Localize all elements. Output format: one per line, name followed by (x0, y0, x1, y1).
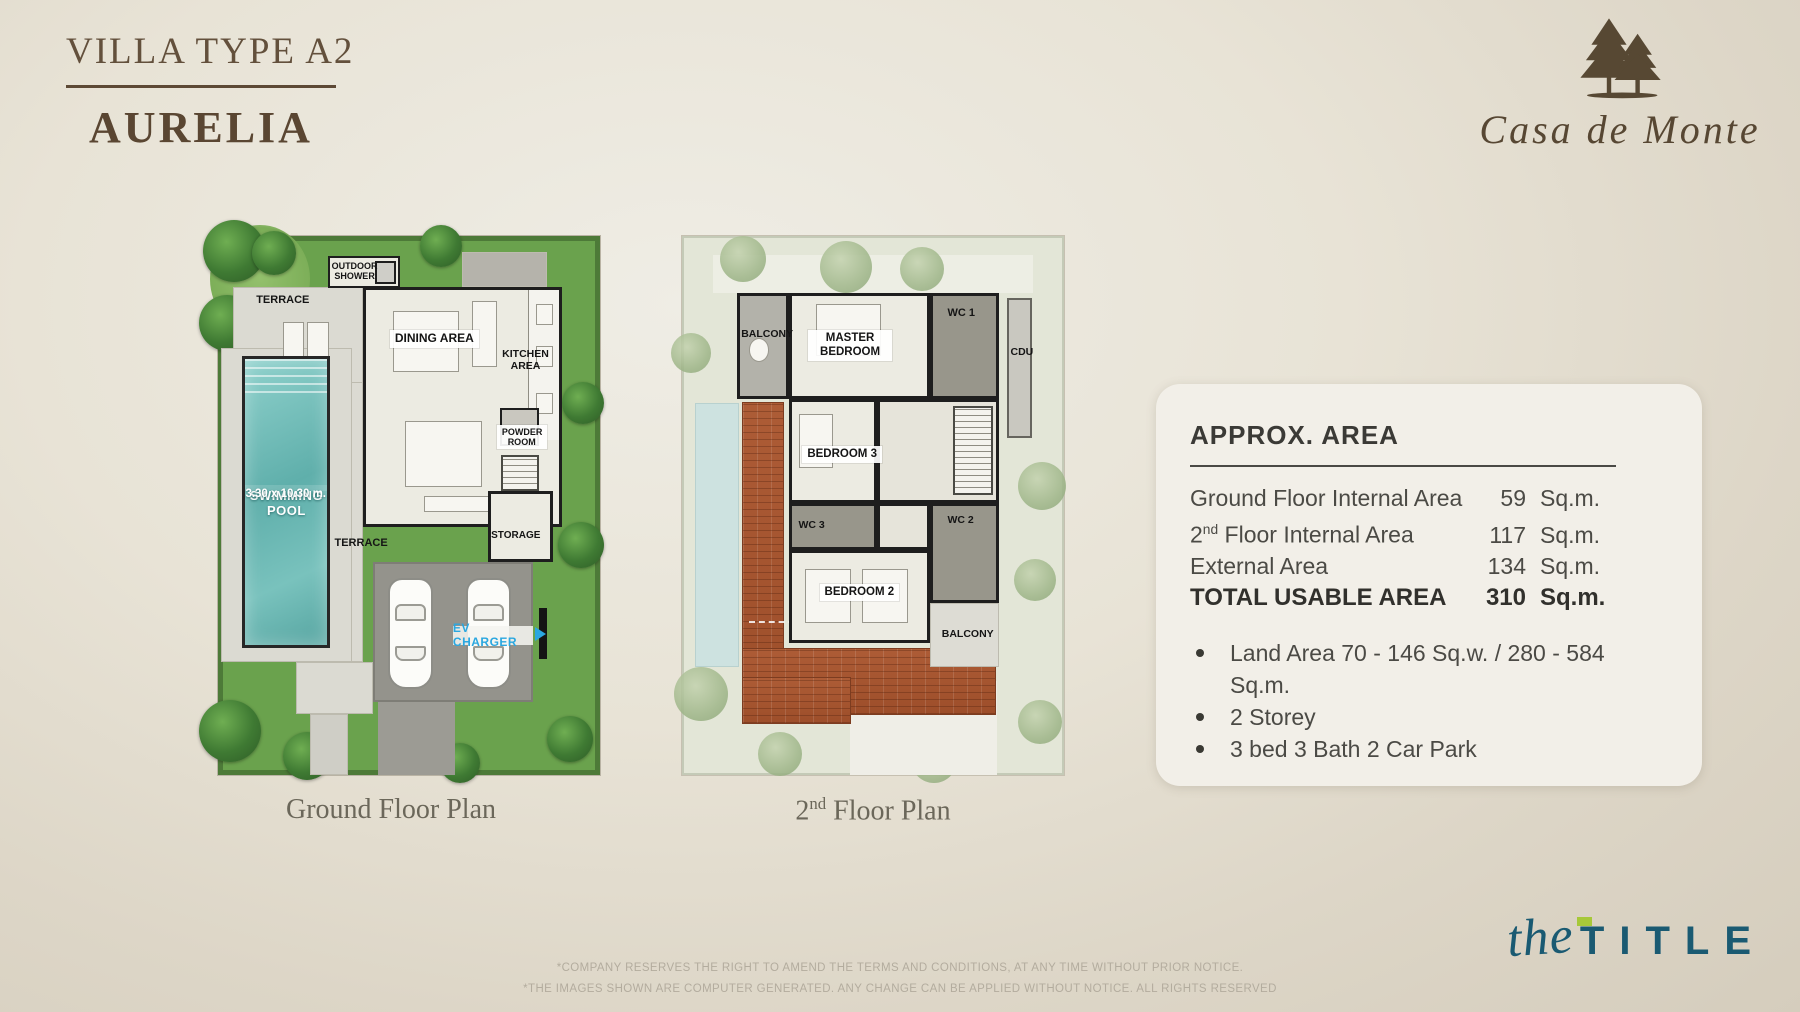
area-row-label: External Area (1190, 551, 1470, 582)
ground-plan-caption: Ground Floor Plan (200, 794, 582, 826)
bedroom2-label: BEDROOM 2 (820, 584, 900, 601)
entry-terrace (296, 662, 373, 714)
powder-room-label: POWDER ROOM (497, 425, 547, 450)
brand-logo: Casa de Monte (1470, 14, 1770, 153)
brand-name: Casa de Monte (1470, 106, 1770, 153)
dining-area-label: DINING AREA (390, 330, 479, 348)
logo-green-accent (1577, 917, 1592, 926)
ground-floor-plan: SWIMMING POOL 3.30 x 10.30 m. OUTDOOR SH… (218, 236, 600, 775)
stairs (953, 406, 993, 495)
logo-word: TITLE (1580, 919, 1766, 964)
concrete-pad (462, 252, 546, 287)
panel-divider (1190, 465, 1616, 467)
area-rows: Ground Floor Internal Area 59 Sq.m. 2nd … (1190, 483, 1616, 613)
approx-area-panel: APPROX. AREA Ground Floor Internal Area … (1156, 384, 1702, 786)
wc1-label: WC 1 (947, 307, 975, 320)
area-row-unit: Sq.m. (1540, 483, 1616, 514)
stairs (501, 455, 539, 492)
bullet-item: Land Area 70 - 146 Sq.w. / 280 - 584 Sq.… (1190, 637, 1616, 701)
ev-charger-band: EV CHARGER (453, 626, 533, 645)
sofa-set (405, 421, 482, 487)
balcony-table (749, 338, 770, 362)
villa-name: AURELIA (66, 102, 336, 153)
caption-number: 2 (795, 795, 809, 826)
tv-console (424, 496, 489, 512)
pool-steps (245, 359, 327, 393)
pool-label: SWIMMING POOL 3.30 x 10.30 m. (245, 485, 327, 491)
area-row-value: 310 (1470, 582, 1526, 613)
cdu-label: CDU (1011, 346, 1034, 358)
area-row-unit: Sq.m. (1540, 551, 1616, 582)
bullet-text: Land Area 70 - 146 Sq.w. / 280 - 584 Sq.… (1230, 637, 1616, 701)
cdu-strip (1007, 298, 1032, 438)
area-row-value: 59 (1470, 483, 1526, 514)
bullet-text: 2 Storey (1230, 701, 1316, 733)
tree (420, 225, 462, 267)
bullet-item: 3 bed 3 Bath 2 Car Park (1190, 733, 1616, 765)
tree (252, 231, 296, 275)
wc3-label: WC 3 (799, 519, 825, 531)
pool-size: 3.30 x 10.30 m. (245, 488, 326, 500)
faded-tree (1014, 559, 1056, 601)
area-row-unit: Sq.m. (1540, 582, 1616, 613)
brochure-page: VILLA TYPE A2 AURELIA Casa de Monte (0, 0, 1800, 1012)
car (388, 578, 433, 688)
swimming-pool: SWIMMING POOL 3.30 x 10.30 m. (242, 356, 330, 648)
entry-path (310, 714, 348, 775)
tree (547, 716, 593, 762)
area-row-label: 2nd Floor Internal Area (1190, 514, 1470, 551)
area-row-value: 134 (1470, 551, 1526, 582)
terrace-lower-label: TERRACE (335, 537, 388, 550)
disclaimer-line2: *THE IMAGES SHOWN ARE COMPUTER GENERATED… (450, 979, 1350, 1000)
area-row-label: Ground Floor Internal Area (1190, 483, 1470, 514)
tree (558, 522, 604, 568)
disclaimer-line1: *COMPANY RESERVES THE RIGHT TO AMEND THE… (450, 958, 1350, 979)
driveway (378, 702, 454, 775)
balcony-top-label: BALCONY (741, 328, 793, 340)
bullet-dot-icon (1196, 649, 1204, 657)
terrace-upper-label: TERRACE (256, 294, 309, 307)
faded-tree (1018, 700, 1062, 744)
faded-tree (900, 247, 944, 291)
villa-type-title: VILLA TYPE A2 (66, 30, 356, 73)
faded-tree (1018, 462, 1066, 510)
pine-trees-icon (1470, 14, 1770, 102)
panel-heading: APPROX. AREA (1190, 420, 1616, 451)
bullet-text: 3 bed 3 Bath 2 Car Park (1230, 733, 1477, 765)
area-row: Ground Floor Internal Area 59 Sq.m. (1190, 483, 1616, 514)
pool-below (695, 403, 739, 667)
area-row: External Area 134 Sq.m. (1190, 551, 1616, 582)
ev-arrow-icon (535, 627, 546, 641)
caption-text: Floor Plan (826, 795, 950, 826)
faded-tree (720, 236, 766, 282)
kitchen-area-label: KITCHEN AREA (499, 348, 552, 372)
ev-charger-label: EV CHARGER (453, 621, 533, 649)
appliance (536, 304, 553, 325)
storage-room (488, 491, 553, 561)
bullet-dot-icon (1196, 745, 1204, 753)
area-row: 2nd Floor Internal Area 117 Sq.m. (1190, 514, 1616, 551)
landing (877, 503, 930, 550)
logo-script-text: the (1505, 906, 1575, 969)
bullet-item: 2 Storey (1190, 701, 1616, 733)
area-row-label: TOTAL USABLE AREA (1190, 582, 1470, 613)
tree (199, 700, 261, 762)
outdoor-shower-label: OUTDOOR SHOWER (331, 261, 379, 282)
faded-tree (671, 333, 711, 373)
faded-tree (820, 241, 872, 293)
faded-tree (758, 732, 802, 776)
area-row-unit: Sq.m. (1540, 520, 1616, 551)
villa-title-block: VILLA TYPE A2 AURELIA (66, 30, 356, 153)
disclaimer: *COMPANY RESERVES THE RIGHT TO AMEND THE… (450, 958, 1350, 999)
logo-word-text: TITLE (1580, 919, 1766, 963)
faded-tree (674, 667, 728, 721)
tree (562, 382, 604, 424)
car-windshield (395, 604, 426, 621)
second-floor-plan: BALCONY MASTER BEDROOM WC 1 CDU BEDROOM … (682, 236, 1064, 775)
roof-band-corner (743, 678, 850, 723)
master-bedroom-label: MASTER BEDROOM (808, 330, 892, 360)
title-divider (66, 85, 336, 88)
second-plan-caption: 2nd Floor Plan (682, 794, 1064, 827)
developer-logo: the TITLE (1507, 908, 1766, 967)
feature-bullets: Land Area 70 - 146 Sq.w. / 280 - 584 Sq.… (1190, 637, 1616, 765)
caption-ordinal: nd (809, 794, 826, 813)
bullet-dot-icon (1196, 713, 1204, 721)
balcony-top (737, 293, 789, 400)
storage-label: STORAGE (491, 530, 540, 542)
wc2-label: WC 2 (947, 514, 973, 526)
area-row-total: TOTAL USABLE AREA 310 Sq.m. (1190, 582, 1616, 613)
bedroom3-label: BEDROOM 3 (802, 446, 882, 463)
area-row-value: 117 (1470, 520, 1526, 551)
car-rear-window (395, 646, 426, 661)
balcony-bottom-label: BALCONY (942, 628, 994, 640)
car-windshield (473, 604, 504, 621)
